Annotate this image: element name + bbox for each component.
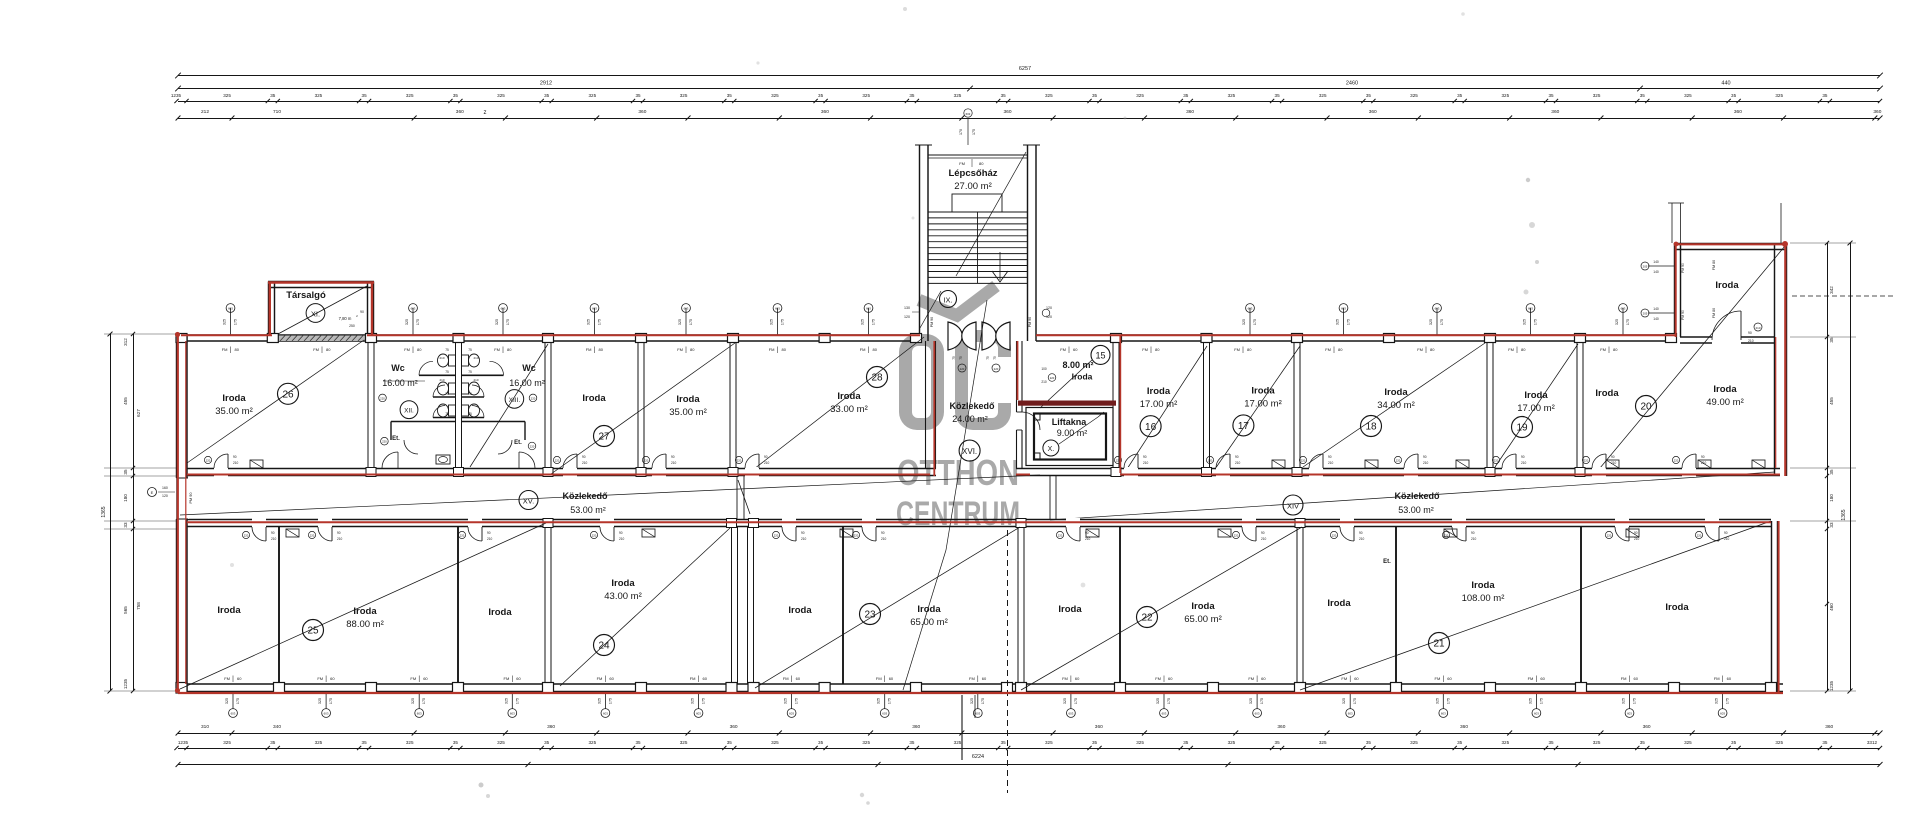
svg-text:220: 220 xyxy=(960,367,965,371)
svg-text:35: 35 xyxy=(1275,93,1281,98)
svg-text:210: 210 xyxy=(1423,461,1429,465)
svg-text:53.00 m²: 53.00 m² xyxy=(1398,505,1434,515)
svg-text:205: 205 xyxy=(1643,312,1648,316)
svg-text:35: 35 xyxy=(270,93,276,98)
svg-text:FM: FM xyxy=(504,676,510,681)
svg-text:FM: FM xyxy=(1142,347,1148,352)
svg-text:220: 220 xyxy=(1058,534,1063,538)
svg-text:80: 80 xyxy=(507,347,512,352)
svg-text:603: 603 xyxy=(228,307,233,311)
svg-text:603: 603 xyxy=(1534,712,1539,716)
svg-text:60: 60 xyxy=(982,676,987,681)
svg-text:90: 90 xyxy=(1359,531,1363,535)
svg-text:603: 603 xyxy=(1621,307,1626,311)
svg-text:35: 35 xyxy=(1548,740,1554,745)
svg-text:80: 80 xyxy=(1613,347,1618,352)
svg-text:FM: FM xyxy=(1417,347,1423,352)
svg-text:60: 60 xyxy=(516,676,521,681)
svg-text:60: 60 xyxy=(330,676,335,681)
svg-text:325: 325 xyxy=(1249,698,1253,704)
svg-text:7,80 m: 7,80 m xyxy=(339,316,352,321)
svg-text:FM: FM xyxy=(1248,676,1254,681)
svg-text:312: 312 xyxy=(123,338,128,346)
svg-text:35: 35 xyxy=(1829,469,1834,475)
svg-text:325: 325 xyxy=(411,698,415,704)
svg-text:28: 28 xyxy=(871,373,883,384)
svg-text:75: 75 xyxy=(445,392,449,396)
svg-text:340: 340 xyxy=(273,724,281,730)
svg-text:25: 25 xyxy=(307,626,319,637)
svg-text:325: 325 xyxy=(406,93,414,98)
svg-text:FM: FM xyxy=(1714,676,1720,681)
svg-text:175: 175 xyxy=(888,698,892,704)
svg-text:Iroda: Iroda xyxy=(1665,602,1689,613)
svg-text:1235: 1235 xyxy=(1829,680,1834,691)
svg-text:220: 220 xyxy=(1396,459,1401,463)
svg-text:35: 35 xyxy=(1548,93,1554,98)
svg-text:35: 35 xyxy=(727,740,733,745)
svg-text:325: 325 xyxy=(1045,93,1053,98)
svg-text:140: 140 xyxy=(1653,317,1659,321)
svg-text:175: 175 xyxy=(515,698,519,704)
svg-text:310: 310 xyxy=(201,724,209,730)
svg-text:220: 220 xyxy=(380,396,385,400)
svg-text:1235: 1235 xyxy=(178,740,189,745)
svg-text:325: 325 xyxy=(877,698,881,704)
svg-text:220: 220 xyxy=(555,459,560,463)
svg-text:210: 210 xyxy=(337,537,343,541)
svg-text:603: 603 xyxy=(324,712,329,716)
svg-text:360: 360 xyxy=(1643,724,1651,730)
svg-text:35: 35 xyxy=(270,740,276,745)
svg-text:603: 603 xyxy=(966,112,971,116)
svg-text:Iroda: Iroda xyxy=(837,391,861,402)
svg-text:603: 603 xyxy=(1162,712,1167,716)
svg-text:175: 175 xyxy=(1626,319,1630,325)
svg-text:90: 90 xyxy=(1471,531,1475,535)
svg-text:175: 175 xyxy=(1539,698,1543,704)
svg-text:75: 75 xyxy=(445,348,449,352)
svg-text:Iroda: Iroda xyxy=(611,578,635,589)
svg-text:325: 325 xyxy=(1063,698,1067,704)
svg-text:FM: FM xyxy=(313,347,319,352)
svg-text:FM: FM xyxy=(1508,347,1514,352)
svg-text:FM: FM xyxy=(317,676,323,681)
svg-text:35: 35 xyxy=(1640,93,1646,98)
svg-text:210: 210 xyxy=(1143,461,1149,465)
svg-text:15: 15 xyxy=(1095,350,1105,360)
svg-text:35: 35 xyxy=(1092,93,1098,98)
svg-text:60: 60 xyxy=(1634,676,1639,681)
svg-text:35.00 m²: 35.00 m² xyxy=(669,407,707,418)
svg-text:603: 603 xyxy=(417,712,422,716)
svg-text:603: 603 xyxy=(882,712,887,716)
svg-text:60: 60 xyxy=(1354,676,1359,681)
svg-text:90: 90 xyxy=(1423,455,1427,459)
svg-text:175: 175 xyxy=(608,698,612,704)
svg-text:FM: FM xyxy=(1528,676,1534,681)
svg-text:325: 325 xyxy=(1684,740,1692,745)
svg-text:325: 325 xyxy=(1593,93,1601,98)
svg-text:16.00 m²: 16.00 m² xyxy=(509,378,545,388)
svg-text:FM 80: FM 80 xyxy=(1712,260,1716,270)
svg-text:220: 220 xyxy=(1050,376,1055,380)
svg-text:210: 210 xyxy=(1041,380,1047,384)
svg-text:120: 120 xyxy=(162,494,168,498)
svg-text:360: 360 xyxy=(1551,109,1559,115)
svg-text:220: 220 xyxy=(1234,534,1239,538)
svg-text:24: 24 xyxy=(598,641,610,652)
svg-text:175: 175 xyxy=(689,319,693,325)
svg-text:325: 325 xyxy=(771,93,779,98)
svg-text:2460: 2460 xyxy=(1346,81,1358,87)
svg-text:603: 603 xyxy=(1068,712,1073,716)
svg-text:325: 325 xyxy=(678,319,682,325)
svg-text:325: 325 xyxy=(1435,698,1439,704)
svg-text:455: 455 xyxy=(123,397,128,405)
svg-text:Iroda: Iroda xyxy=(1595,388,1619,399)
svg-text:220: 220 xyxy=(244,534,249,538)
svg-text:FM: FM xyxy=(690,676,696,681)
svg-text:35: 35 xyxy=(1822,740,1828,745)
svg-text:FM: FM xyxy=(1234,347,1240,352)
svg-text:325: 325 xyxy=(225,698,229,704)
svg-text:210: 210 xyxy=(1085,537,1091,541)
svg-text:325: 325 xyxy=(861,319,865,325)
svg-text:325: 325 xyxy=(1429,319,1433,325)
svg-text:210: 210 xyxy=(1748,339,1754,343)
svg-text:35: 35 xyxy=(453,93,459,98)
svg-text:325: 325 xyxy=(1319,740,1327,745)
svg-text:Iroda: Iroda xyxy=(1327,598,1351,609)
svg-text:325: 325 xyxy=(771,740,779,745)
svg-text:75: 75 xyxy=(468,412,472,416)
svg-text:175: 175 xyxy=(1347,319,1351,325)
svg-text:342: 342 xyxy=(1829,286,1834,294)
svg-text:220: 220 xyxy=(644,459,649,463)
svg-text:80: 80 xyxy=(1430,347,1435,352)
svg-text:603: 603 xyxy=(1248,307,1253,311)
svg-text:35.00 m²: 35.00 m² xyxy=(215,406,253,417)
svg-text:35: 35 xyxy=(544,740,550,745)
svg-text:175: 175 xyxy=(422,698,426,704)
svg-text:80: 80 xyxy=(873,347,878,352)
svg-text:35: 35 xyxy=(1001,93,1007,98)
svg-text:175: 175 xyxy=(702,698,706,704)
svg-text:35: 35 xyxy=(818,93,824,98)
svg-text:360: 360 xyxy=(1277,724,1285,730)
svg-text:175: 175 xyxy=(972,129,976,135)
svg-text:758: 758 xyxy=(136,602,141,610)
svg-text:90: 90 xyxy=(233,455,237,459)
svg-text:Wc: Wc xyxy=(391,363,405,373)
svg-text:140: 140 xyxy=(1653,270,1659,274)
svg-text:325: 325 xyxy=(1228,740,1236,745)
svg-text:210: 210 xyxy=(1521,461,1527,465)
svg-text:90: 90 xyxy=(1085,531,1089,535)
svg-text:6224: 6224 xyxy=(972,754,984,760)
svg-text:325: 325 xyxy=(1156,698,1160,704)
svg-text:325: 325 xyxy=(588,93,596,98)
svg-text:108.00 m²: 108.00 m² xyxy=(1462,593,1505,604)
svg-text:90: 90 xyxy=(1143,455,1147,459)
svg-text:325: 325 xyxy=(223,93,231,98)
svg-text:24.00 m²: 24.00 m² xyxy=(952,414,988,424)
svg-text:90: 90 xyxy=(1261,531,1265,535)
svg-text:565: 565 xyxy=(123,606,128,614)
svg-text:FM: FM xyxy=(769,347,775,352)
svg-text:35: 35 xyxy=(1275,740,1281,745)
svg-text:325: 325 xyxy=(1342,698,1346,704)
svg-text:220: 220 xyxy=(1674,459,1679,463)
svg-text:220: 220 xyxy=(592,534,597,538)
svg-text:325: 325 xyxy=(1319,93,1327,98)
svg-text:210: 210 xyxy=(1471,537,1477,541)
svg-text:FM: FM xyxy=(1325,347,1331,352)
svg-text:2912: 2912 xyxy=(540,81,552,87)
svg-text:210: 210 xyxy=(1261,537,1267,541)
svg-text:60: 60 xyxy=(1727,676,1732,681)
svg-text:Iroda: Iroda xyxy=(1524,390,1548,401)
svg-text:360: 360 xyxy=(1825,724,1833,730)
svg-text:1365: 1365 xyxy=(101,506,107,517)
svg-text:35: 35 xyxy=(1731,740,1737,745)
svg-text:FM: FM xyxy=(597,676,603,681)
svg-text:Iroda: Iroda xyxy=(222,393,246,404)
svg-text:360: 360 xyxy=(1734,109,1742,115)
svg-text:603: 603 xyxy=(696,712,701,716)
svg-text:325: 325 xyxy=(1501,740,1509,745)
svg-text:80: 80 xyxy=(417,347,422,352)
svg-text:603: 603 xyxy=(866,307,871,311)
svg-text:35: 35 xyxy=(1457,740,1463,745)
svg-text:325: 325 xyxy=(315,93,323,98)
svg-text:627: 627 xyxy=(136,409,141,417)
svg-text:440: 440 xyxy=(1721,81,1730,87)
svg-text:220: 220 xyxy=(382,440,387,444)
svg-text:16: 16 xyxy=(1145,422,1157,433)
svg-text:325: 325 xyxy=(405,319,409,325)
svg-text:180: 180 xyxy=(123,494,128,502)
svg-text:210: 210 xyxy=(473,378,478,382)
svg-text:35: 35 xyxy=(909,93,915,98)
svg-text:60: 60 xyxy=(237,676,242,681)
svg-text:PM 90: PM 90 xyxy=(1681,310,1685,320)
svg-text:Iroda: Iroda xyxy=(1715,280,1739,291)
svg-text:175: 175 xyxy=(1726,698,1730,704)
svg-text:FM: FM xyxy=(404,347,410,352)
svg-text:80: 80 xyxy=(1155,347,1160,352)
svg-text:325: 325 xyxy=(862,740,870,745)
svg-text:FM: FM xyxy=(1062,676,1068,681)
svg-text:325: 325 xyxy=(954,740,962,745)
svg-text:325: 325 xyxy=(1615,319,1619,325)
svg-text:FM: FM xyxy=(1060,347,1066,352)
svg-text:603: 603 xyxy=(975,712,980,716)
svg-text:210: 210 xyxy=(473,356,478,360)
svg-text:175: 175 xyxy=(1167,698,1171,704)
svg-text:325: 325 xyxy=(1410,93,1418,98)
svg-text:220: 220 xyxy=(994,367,999,371)
svg-text:80: 80 xyxy=(326,347,331,352)
svg-text:XV.: XV. xyxy=(523,497,534,506)
svg-text:220: 220 xyxy=(1697,534,1702,538)
svg-text:210: 210 xyxy=(1611,461,1617,465)
svg-text:325: 325 xyxy=(223,319,227,325)
svg-text:35: 35 xyxy=(1366,740,1372,745)
svg-text:210: 210 xyxy=(1328,461,1334,465)
svg-text:65.00 m²: 65.00 m² xyxy=(1184,614,1222,625)
svg-text:175: 175 xyxy=(234,319,238,325)
svg-text:325: 325 xyxy=(954,93,962,98)
svg-text:360: 360 xyxy=(1460,724,1468,730)
svg-text:455: 455 xyxy=(1829,397,1834,405)
svg-text:220: 220 xyxy=(460,534,465,538)
svg-text:210: 210 xyxy=(439,378,444,382)
svg-text:603: 603 xyxy=(1627,712,1632,716)
svg-text:175: 175 xyxy=(1353,698,1357,704)
svg-text:FM: FM xyxy=(1600,347,1606,352)
svg-text:90: 90 xyxy=(1328,455,1332,459)
svg-text:60: 60 xyxy=(1073,347,1078,352)
svg-text:220: 220 xyxy=(774,534,779,538)
svg-text:Iroda: Iroda xyxy=(917,604,941,615)
svg-text:Iroda: Iroda xyxy=(217,605,241,616)
svg-text:90: 90 xyxy=(1748,331,1752,335)
svg-text:Et.: Et. xyxy=(1383,559,1391,565)
svg-text:325: 325 xyxy=(1684,93,1692,98)
svg-text:19: 19 xyxy=(1516,423,1528,434)
svg-text:325: 325 xyxy=(1242,319,1246,325)
svg-text:220: 220 xyxy=(1208,459,1213,463)
svg-text:220: 220 xyxy=(530,445,535,449)
svg-text:FM: FM xyxy=(677,347,683,352)
svg-text:325: 325 xyxy=(1136,740,1144,745)
svg-text:210: 210 xyxy=(801,537,807,541)
svg-text:Iroda: Iroda xyxy=(488,607,512,618)
svg-text:35: 35 xyxy=(909,740,915,745)
svg-text:35: 35 xyxy=(727,93,733,98)
svg-text:90: 90 xyxy=(801,531,805,535)
svg-text:16.00 m²: 16.00 m² xyxy=(382,378,418,388)
svg-text:FM: FM xyxy=(783,676,789,681)
svg-text:325: 325 xyxy=(1775,93,1783,98)
svg-text:175: 175 xyxy=(1440,319,1444,325)
svg-text:CENTRUM: CENTRUM xyxy=(896,495,1020,533)
svg-text:90: 90 xyxy=(671,455,675,459)
svg-text:90: 90 xyxy=(337,531,341,535)
svg-text:325: 325 xyxy=(680,740,688,745)
svg-text:35: 35 xyxy=(544,93,550,98)
svg-text:175: 175 xyxy=(236,698,240,704)
svg-text:100: 100 xyxy=(1041,367,1047,371)
svg-text:FM: FM xyxy=(969,676,975,681)
svg-text:43.00 m²: 43.00 m² xyxy=(604,591,642,602)
svg-text:90: 90 xyxy=(1611,455,1615,459)
svg-text:325: 325 xyxy=(497,93,505,98)
svg-text:325: 325 xyxy=(1715,698,1719,704)
svg-text:220: 220 xyxy=(531,396,536,400)
svg-text:90: 90 xyxy=(271,531,275,535)
svg-text:33: 33 xyxy=(123,522,128,528)
svg-text:175: 175 xyxy=(795,698,799,704)
svg-text:1235: 1235 xyxy=(123,678,128,689)
svg-text:220: 220 xyxy=(1494,459,1499,463)
svg-text:710: 710 xyxy=(273,109,281,115)
svg-text:8.00 m²: 8.00 m² xyxy=(1062,360,1093,370)
svg-text:325: 325 xyxy=(1593,740,1601,745)
svg-text:FM: FM xyxy=(1341,676,1347,681)
svg-text:60: 60 xyxy=(796,676,801,681)
svg-text:325: 325 xyxy=(1045,740,1053,745)
svg-text:60: 60 xyxy=(609,676,614,681)
svg-text:220: 220 xyxy=(1584,459,1589,463)
svg-text:53.00 m²: 53.00 m² xyxy=(570,505,606,515)
svg-text:175: 175 xyxy=(1534,319,1538,325)
svg-text:Wc: Wc xyxy=(522,363,536,373)
svg-text:Iroda: Iroda xyxy=(1072,372,1093,382)
svg-text:175: 175 xyxy=(598,319,602,325)
svg-text:Társalgó: Társalgó xyxy=(286,290,326,301)
svg-text:325: 325 xyxy=(1136,93,1144,98)
svg-text:88.00 m²: 88.00 m² xyxy=(346,619,384,630)
svg-text:603: 603 xyxy=(501,307,506,311)
svg-text:26: 26 xyxy=(282,389,294,400)
svg-text:XVI.: XVI. xyxy=(962,447,977,456)
svg-text:6257: 6257 xyxy=(1019,66,1031,72)
svg-text:FM 80: FM 80 xyxy=(1712,308,1716,318)
svg-text:PM 90: PM 90 xyxy=(1028,317,1032,327)
svg-text:75: 75 xyxy=(952,356,956,360)
svg-text:210: 210 xyxy=(1755,326,1760,330)
svg-text:75: 75 xyxy=(993,356,997,360)
svg-text:603: 603 xyxy=(1720,712,1725,716)
svg-text:210: 210 xyxy=(233,461,239,465)
svg-text:Iroda: Iroda xyxy=(788,605,812,616)
svg-text:325: 325 xyxy=(862,93,870,98)
svg-text:220: 220 xyxy=(854,534,859,538)
svg-text:603: 603 xyxy=(1435,307,1440,311)
svg-text:460: 460 xyxy=(1829,603,1834,611)
svg-text:Iroda: Iroda xyxy=(1058,604,1082,615)
svg-text:175: 175 xyxy=(1074,698,1078,704)
svg-text:Iroda: Iroda xyxy=(1384,387,1408,398)
svg-text:1235: 1235 xyxy=(171,93,182,98)
svg-text:205: 205 xyxy=(1643,265,1648,269)
svg-text:17: 17 xyxy=(1238,421,1250,432)
svg-text:90: 90 xyxy=(881,531,885,535)
svg-text:175: 175 xyxy=(781,319,785,325)
svg-text:360: 360 xyxy=(1873,109,1881,115)
svg-text:160: 160 xyxy=(162,486,168,490)
svg-text:35: 35 xyxy=(1640,740,1646,745)
svg-text:80: 80 xyxy=(1521,347,1526,352)
svg-text:140: 140 xyxy=(1653,260,1659,264)
svg-text:Iroda: Iroda xyxy=(582,393,606,404)
svg-text:175: 175 xyxy=(981,698,985,704)
svg-text:35: 35 xyxy=(1457,93,1463,98)
svg-text:75: 75 xyxy=(468,392,472,396)
svg-text:220: 220 xyxy=(206,459,211,463)
svg-text:1365: 1365 xyxy=(1841,509,1847,520)
svg-text:35: 35 xyxy=(818,740,824,745)
svg-text:FM: FM xyxy=(1435,676,1441,681)
svg-text:325: 325 xyxy=(1622,698,1626,704)
svg-text:325: 325 xyxy=(970,698,974,704)
svg-text:603: 603 xyxy=(510,712,515,716)
svg-text:FM: FM xyxy=(586,347,592,352)
svg-text:80: 80 xyxy=(235,347,240,352)
